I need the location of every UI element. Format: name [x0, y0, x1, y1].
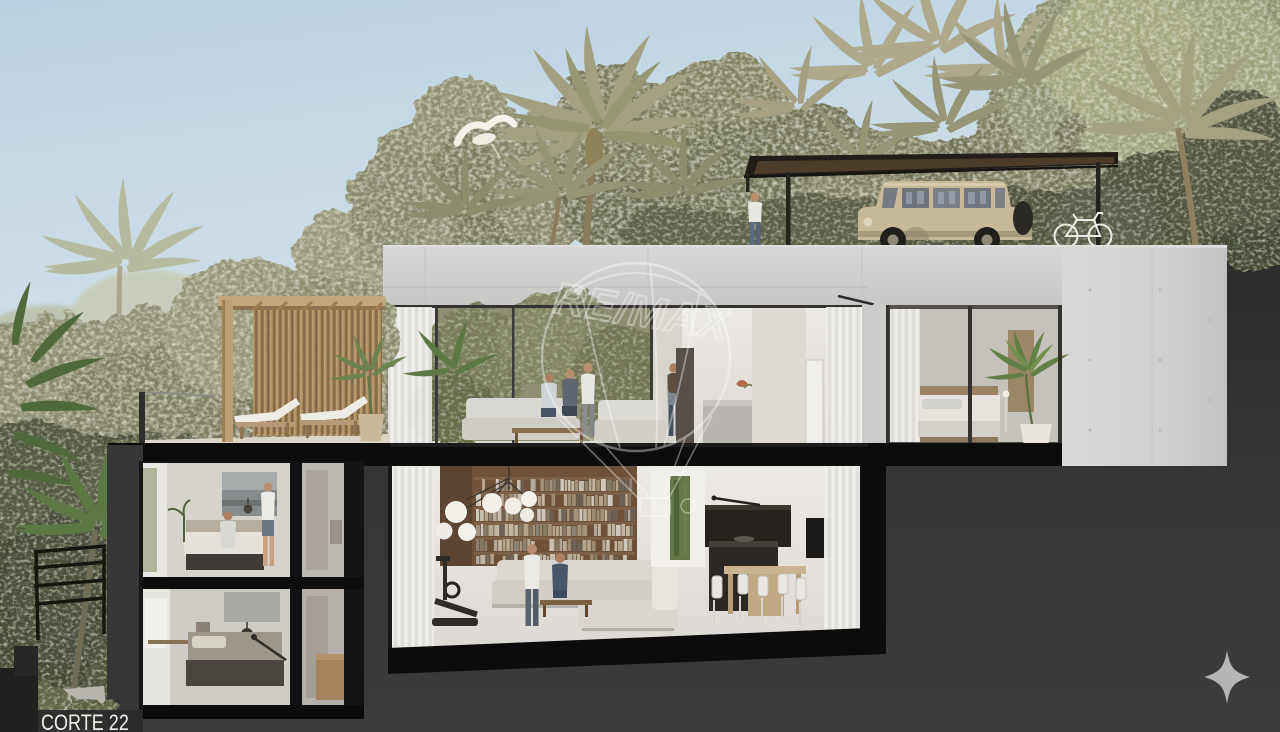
svg-text:CORTE 22: CORTE 22: [41, 711, 129, 732]
